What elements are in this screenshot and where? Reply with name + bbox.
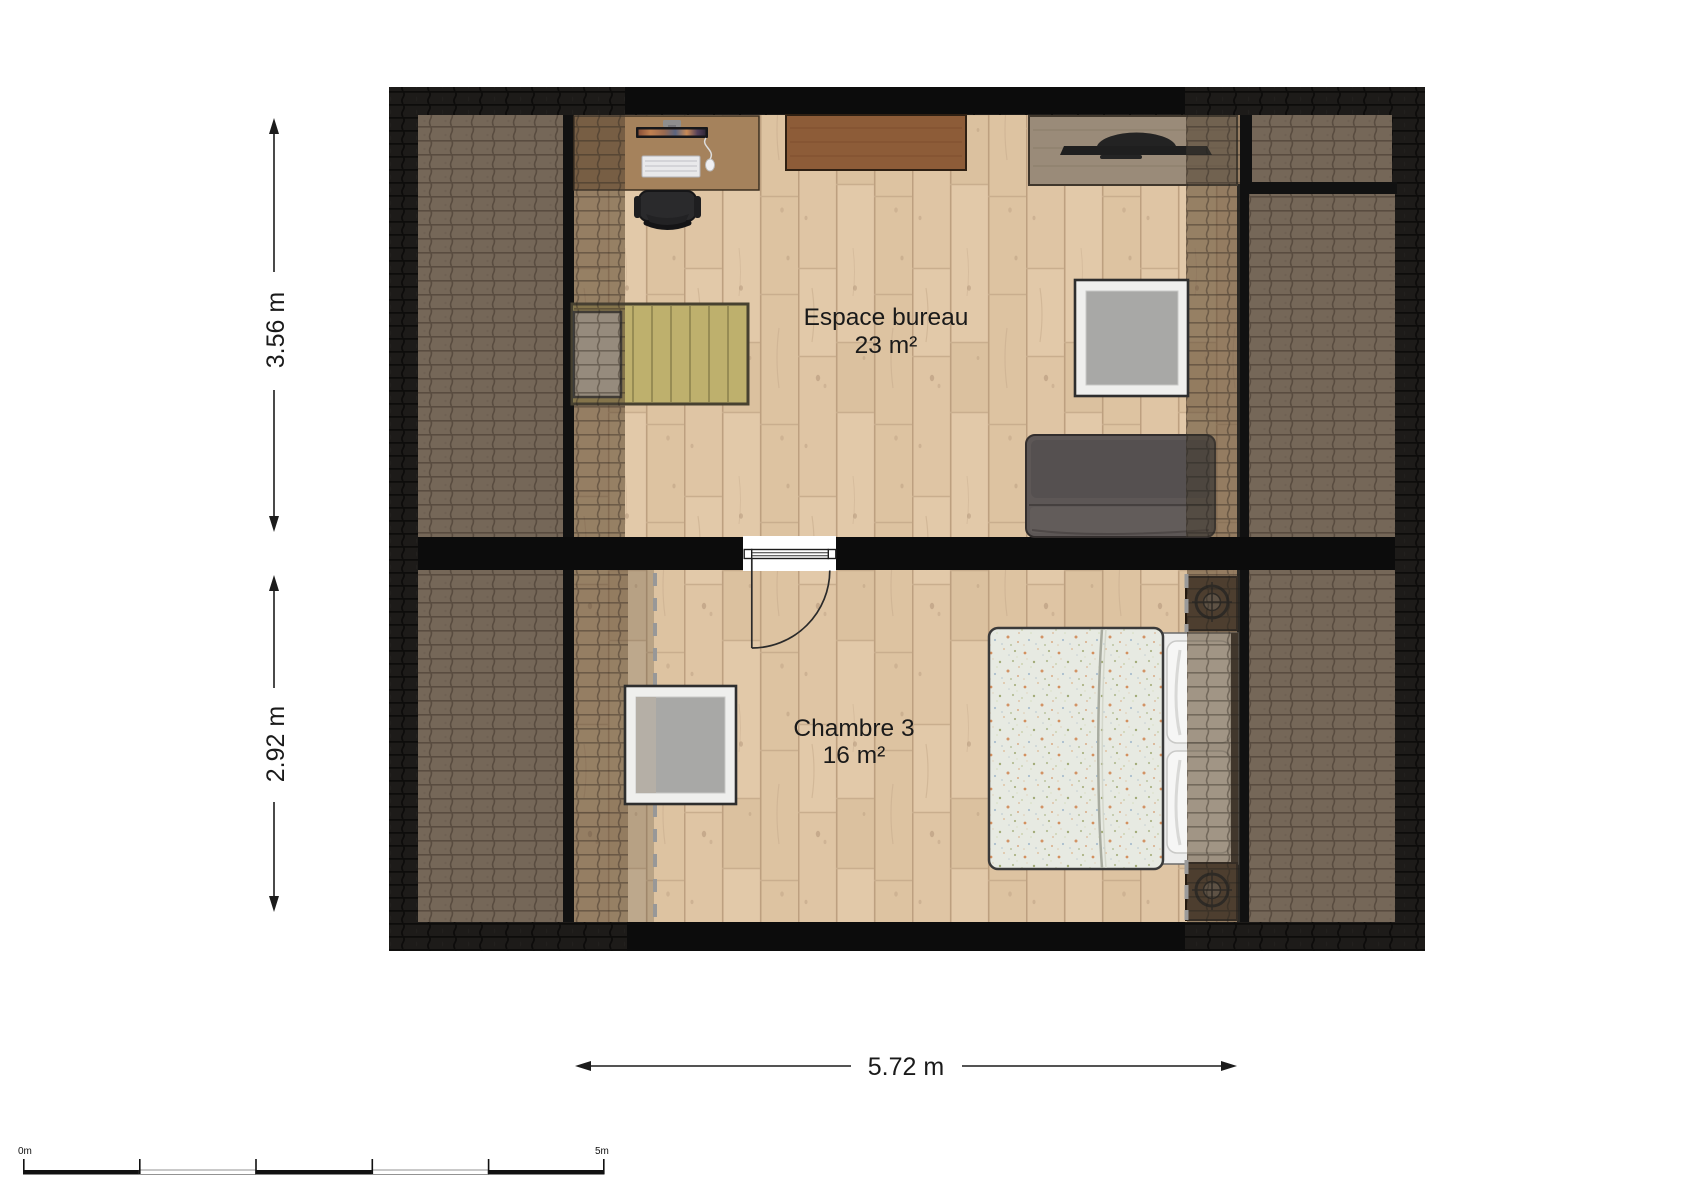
svg-text:3.56 m: 3.56 m — [262, 292, 290, 368]
svg-text:Espace bureau: Espace bureau — [804, 304, 969, 331]
svg-text:16 m²: 16 m² — [823, 742, 886, 769]
svg-text:Chambre 3: Chambre 3 — [793, 715, 914, 742]
svg-text:5.72 m: 5.72 m — [868, 1053, 944, 1081]
svg-text:23 m²: 23 m² — [855, 332, 918, 359]
svg-text:5m: 5m — [595, 1146, 609, 1157]
svg-text:2.92 m: 2.92 m — [262, 706, 290, 782]
svg-text:0m: 0m — [18, 1146, 32, 1157]
